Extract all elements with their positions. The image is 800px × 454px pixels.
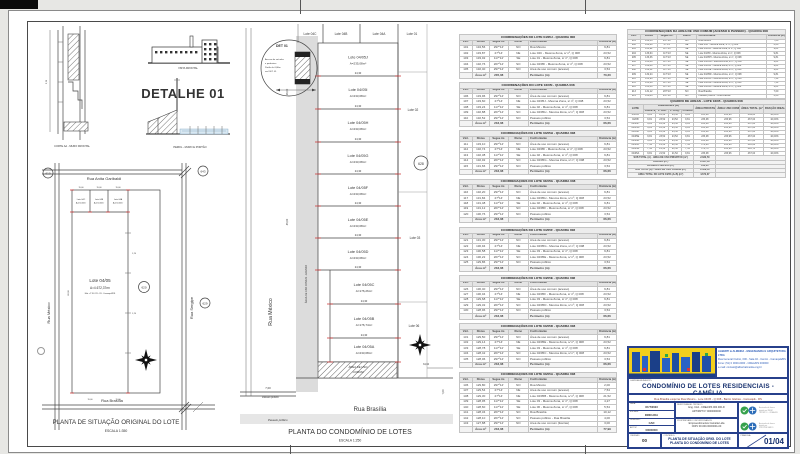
svg-text:Lote 04/05E: Lote 04/05E <box>348 218 369 222</box>
detail-title: DETALHE 01 <box>141 86 225 101</box>
svg-text:A=233,08m²: A=233,08m² <box>350 127 366 131</box>
condo-plan-title: PLANTA DO CONDOMÍNIO DE LOTES <box>288 427 412 436</box>
detail-01-drawing: 3,20 CORTE AA - MURO FRONTAL VISTA FRONT… <box>40 22 235 162</box>
svg-text:3,20: 3,20 <box>46 79 48 84</box>
title-block: ALBERTI & ALMEIDA - ENGENHARIA E ARQUITE… <box>627 346 789 449</box>
signature-seal-icon <box>740 421 757 432</box>
svg-text:A=150,00m²: A=150,00m² <box>94 202 105 205</box>
field-scale: ESCALA:INDICADA <box>629 411 674 419</box>
site-plan-scale: ESCALA 1:350 <box>105 429 128 433</box>
svg-text:Rua Sergipe: Rua Sergipe <box>189 296 194 319</box>
building-elevation-drawing: VISTA FRONTAL <box>148 36 230 70</box>
svg-text:Lote 04/05F: Lote 04/05F <box>348 186 369 190</box>
svg-text:e pedestres: e pedestres <box>265 62 277 65</box>
svg-text:Lote 06: Lote 06 <box>409 324 420 328</box>
svg-text:A=233,08m²: A=233,08m² <box>350 94 366 98</box>
condo-lot-labels: Lote 04/05J A=235,08m² Lote 04/05I A=233… <box>348 56 375 356</box>
svg-text:643: 643 <box>200 170 205 174</box>
digital-signature-stamp: Assinado de formadigital por RESP.TÉCNIC… <box>739 403 787 419</box>
svg-text:45,00: 45,00 <box>285 218 289 225</box>
lot-coordinates-table-g: COORDENAÇÕES DO LOTE 04/05G - QUADRA 008… <box>459 179 617 224</box>
svg-text:Lote 04B: Lote 04B <box>335 32 348 36</box>
svg-text:A=235,08m²: A=235,08m² <box>350 62 366 66</box>
street-node-circle: 628 <box>414 156 428 170</box>
svg-text:24,30: 24,30 <box>355 169 362 173</box>
svg-text:15,00: 15,00 <box>78 187 84 189</box>
sidewalk-label: Passeio público <box>262 396 279 399</box>
svg-text:Lote 04/05J: Lote 04/05J <box>348 56 368 60</box>
detail-callout: DET 01 Acesso de veículos e pedestres Po… <box>261 40 317 96</box>
lot-coordinates-table-j: COORDENAÇÕES DO LOTE 04/05J - QUADRA 008… <box>459 34 617 79</box>
responsible-box: RESPONSÁVEL TÉCNICO: Eng. Civil - CREA/R… <box>675 402 738 418</box>
lot-coordinates-table-f: COORDENAÇÕES DO LOTE 04/05F - QUADRA 008… <box>459 227 617 272</box>
svg-text:A=150,00m²: A=150,00m² <box>76 202 87 205</box>
svg-text:Lote 04/05D: Lote 04/05D <box>348 250 369 254</box>
sheet-number: 01/04 <box>764 437 784 446</box>
svg-text:Lote 01: Lote 01 <box>407 32 418 36</box>
north-rose-icon <box>135 349 157 371</box>
svg-text:DET 01: DET 01 <box>276 44 288 48</box>
svg-text:Lote 04/05B: Lote 04/05B <box>354 317 375 321</box>
scan-edge-artifact <box>0 0 38 9</box>
svg-text:A=176,26m²: A=176,26m² <box>356 289 372 293</box>
svg-text:24,30: 24,30 <box>355 137 362 141</box>
svg-text:A=233,08m²: A=233,08m² <box>350 160 366 164</box>
svg-text:A=4.672,37m²: A=4.672,37m² <box>90 286 110 290</box>
project-title-box: EMPREENDIMENTO: CONDOMÍNIO DE LOTES RESI… <box>628 378 788 394</box>
company-info: ALBERTI & ALMEIDA - ENGENHARIA E ARQUITE… <box>716 347 788 378</box>
svg-text:A=233,08m²: A=233,08m² <box>350 192 366 196</box>
svg-text:15,00: 15,00 <box>87 399 93 401</box>
owner-box: PROPRIETÁRIO / INCORPORADOR: Empreendime… <box>675 418 738 434</box>
lot-coordinates-table-d: COORDENAÇÕES DO LOTE 04/05D - QUADRA 008… <box>459 323 617 368</box>
svg-text:A=233,08m²: A=233,08m² <box>356 351 372 355</box>
svg-text:A=233,08m²: A=233,08m² <box>350 256 366 260</box>
street-node-circles: 610 643 620 629 <box>43 166 210 308</box>
svg-text:Lote 04/05A: Lote 04/05A <box>354 345 375 349</box>
field-date: DATA:OUT/2023 <box>629 403 674 411</box>
digital-signature-stamp: Assinado de formadigital porPROPRIETÁRIO <box>739 419 787 435</box>
svg-text:VISTA FRONTAL: VISTA FRONTAL <box>178 66 198 70</box>
svg-text:Lote 04/05C: Lote 04/05C <box>354 283 375 287</box>
svg-text:Portão h=1,80m: Portão h=1,80m <box>265 66 281 69</box>
street-labels: Rua Anita Garibaldi Rua México Rua Sergi… <box>46 176 194 403</box>
svg-text:Lote 04/05I: Lote 04/05I <box>348 88 367 92</box>
svg-text:A=176,74m²: A=176,74m² <box>356 323 372 327</box>
main-lot-label: Lote 04/05 A=4.672,37m² Mat. nº 35.741 -… <box>85 278 116 295</box>
access-area-label: ÁREA DE USO COMUM - ACESSO <box>305 265 308 303</box>
svg-text:Lote 04/05: Lote 04/05 <box>89 278 111 283</box>
svg-text:A=233,08m²: A=233,08m² <box>350 224 366 228</box>
signature-stamps: Assinado de formadigital por RESP.TÉCNIC… <box>738 402 788 433</box>
drawing-sheet-page: 3,20 CORTE AA - MURO FRONTAL VISTA FRONT… <box>0 0 800 454</box>
condo-top-lot-labels: Lote 04C Lote 04B Lote 04A Lote 01 <box>304 32 418 36</box>
svg-text:15,00: 15,00 <box>115 399 121 401</box>
areas-summary-table: QUADRO DE ÁREAS - LOTE 04/05 - QUADRA 00… <box>627 99 786 178</box>
svg-text:24,30: 24,30 <box>355 233 362 237</box>
signature-seal-icon <box>740 405 757 416</box>
svg-text:7,00: 7,00 <box>265 386 271 390</box>
svg-text:24,30: 24,30 <box>355 201 362 205</box>
sheet-fields: DATA:OUT/2023 ESCALA:INDICADA DESENHO:CA… <box>628 402 675 433</box>
svg-text:CORTE AA - MURO FRONTAL: CORTE AA - MURO FRONTAL <box>54 144 90 148</box>
svg-text:Lote 04C: Lote 04C <box>304 32 318 36</box>
svg-text:1,20: 1,20 <box>132 253 137 255</box>
content-box: CONTEÚDO: PLANTA DE SITUAÇÃO ORIG. DO LO… <box>661 433 738 448</box>
svg-text:ver DET. 01: ver DET. 01 <box>265 70 277 73</box>
rua-mexico-label: Rua México <box>268 298 274 326</box>
svg-text:ÁREA DE USO: ÁREA DE USO <box>349 365 369 369</box>
sub-lot-labels: Lote 04C A=150,00m² Lote 04B A=150,00m² … <box>76 198 124 205</box>
svg-text:Lote 02: Lote 02 <box>408 108 419 112</box>
svg-text:16,00: 16,00 <box>285 88 289 95</box>
svg-text:Lote 04B: Lote 04B <box>95 198 104 201</box>
field-drawing: DESENHO:CAD <box>629 419 674 427</box>
site-plan: Rua Anita Garibaldi Rua México Rua Sergi… <box>30 163 230 445</box>
fold-mark <box>300 0 301 14</box>
sheet-number-box: PRANCHA: 01/04 <box>738 433 788 448</box>
svg-text:COMUM: COMUM <box>353 370 365 374</box>
svg-text:Lote 04/05G: Lote 04/05G <box>348 154 369 158</box>
svg-text:15,00: 15,00 <box>115 187 121 189</box>
svg-text:24,30: 24,30 <box>361 333 368 337</box>
svg-text:Lote 04A: Lote 04A <box>114 198 123 201</box>
project-label: EMPREENDIMENTO: <box>629 379 787 382</box>
condo-plan-scale: ESCALA 1:250 <box>339 439 362 443</box>
common-area-coordinates-table: COORDENAÇÕES DA ÁREA DE USO COMUM (ACESS… <box>627 29 786 103</box>
revision-box: REVISÃO 00 <box>628 433 661 448</box>
svg-text:Acesso de veículos: Acesso de veículos <box>265 58 285 61</box>
project-address: Rua Brasília esquina Rua México - Lote 0… <box>628 394 788 402</box>
wall-section-drawing: 3,20 CORTE AA - MURO FRONTAL <box>46 26 90 148</box>
site-plan-title: PLANTA DE SITUAÇÃO ORIGINAL DO LOTE <box>53 419 180 426</box>
svg-text:15,00: 15,00 <box>96 187 102 189</box>
svg-text:Lote 04/05H: Lote 04/05H <box>348 121 369 125</box>
lot-coordinates-table-a: COORDENAÇÕES DO LOTE 04/05A - QUADRA 008… <box>459 372 617 433</box>
svg-text:Lote 03: Lote 03 <box>410 236 421 240</box>
svg-text:Rua México: Rua México <box>46 302 51 324</box>
north-rose-icon <box>409 334 431 356</box>
svg-text:628: 628 <box>418 162 424 166</box>
sidewalk-label: Passeio público <box>268 418 288 422</box>
lot-coordinates-table-e: COORDENAÇÕES DO LOTE 04/05E - QUADRA 008… <box>459 275 617 320</box>
svg-text:7,00: 7,00 <box>441 389 445 395</box>
lot-coordinates-table-h: COORDENAÇÕES DO LOTE 04/05H - QUADRA 008… <box>459 130 617 175</box>
svg-text:24,30: 24,30 <box>355 265 362 269</box>
lot-tables-column: COORDENAÇÕES DO LOTE 04/05J - QUADRA 008… <box>459 34 617 436</box>
svg-text:A=150,00m²: A=150,00m² <box>113 202 124 205</box>
svg-text:Rua Anita Garibaldi: Rua Anita Garibaldi <box>87 176 122 181</box>
svg-text:60,00: 60,00 <box>68 289 70 295</box>
svg-text:610: 610 <box>45 172 50 176</box>
svg-text:620: 620 <box>141 286 146 290</box>
svg-text:34,04: 34,04 <box>423 363 430 366</box>
svg-text:Lote 04C: Lote 04C <box>77 198 86 201</box>
svg-text:Mat. nº 35.741 - R.I. Camaquã/: Mat. nº 35.741 - R.I. Camaquã/RS <box>85 292 116 295</box>
rua-brasilia-label: Rua Brasília <box>354 407 387 413</box>
svg-text:1,20: 1,20 <box>132 313 137 315</box>
svg-text:24,30: 24,30 <box>355 104 362 108</box>
svg-text:629: 629 <box>202 302 207 306</box>
fold-mark <box>585 0 586 14</box>
svg-text:24,30: 24,30 <box>361 299 368 303</box>
svg-text:Lote 04A: Lote 04A <box>373 32 387 36</box>
company-logo <box>628 347 716 378</box>
lot-coordinates-table-i: COORDENAÇÕES DO LOTE 04/05I - QUADRA 008… <box>459 82 617 127</box>
condo-plan: Lote 04C Lote 04B Lote 04A Lote 01 Lote … <box>238 22 455 444</box>
neighbor-lot-labels: Lote 02 Lote 03 Lote 06 <box>408 108 421 328</box>
svg-text:24,30: 24,30 <box>355 71 362 75</box>
svg-text:PERFIL - MURO E PORTÃO: PERFIL - MURO E PORTÃO <box>173 144 206 149</box>
